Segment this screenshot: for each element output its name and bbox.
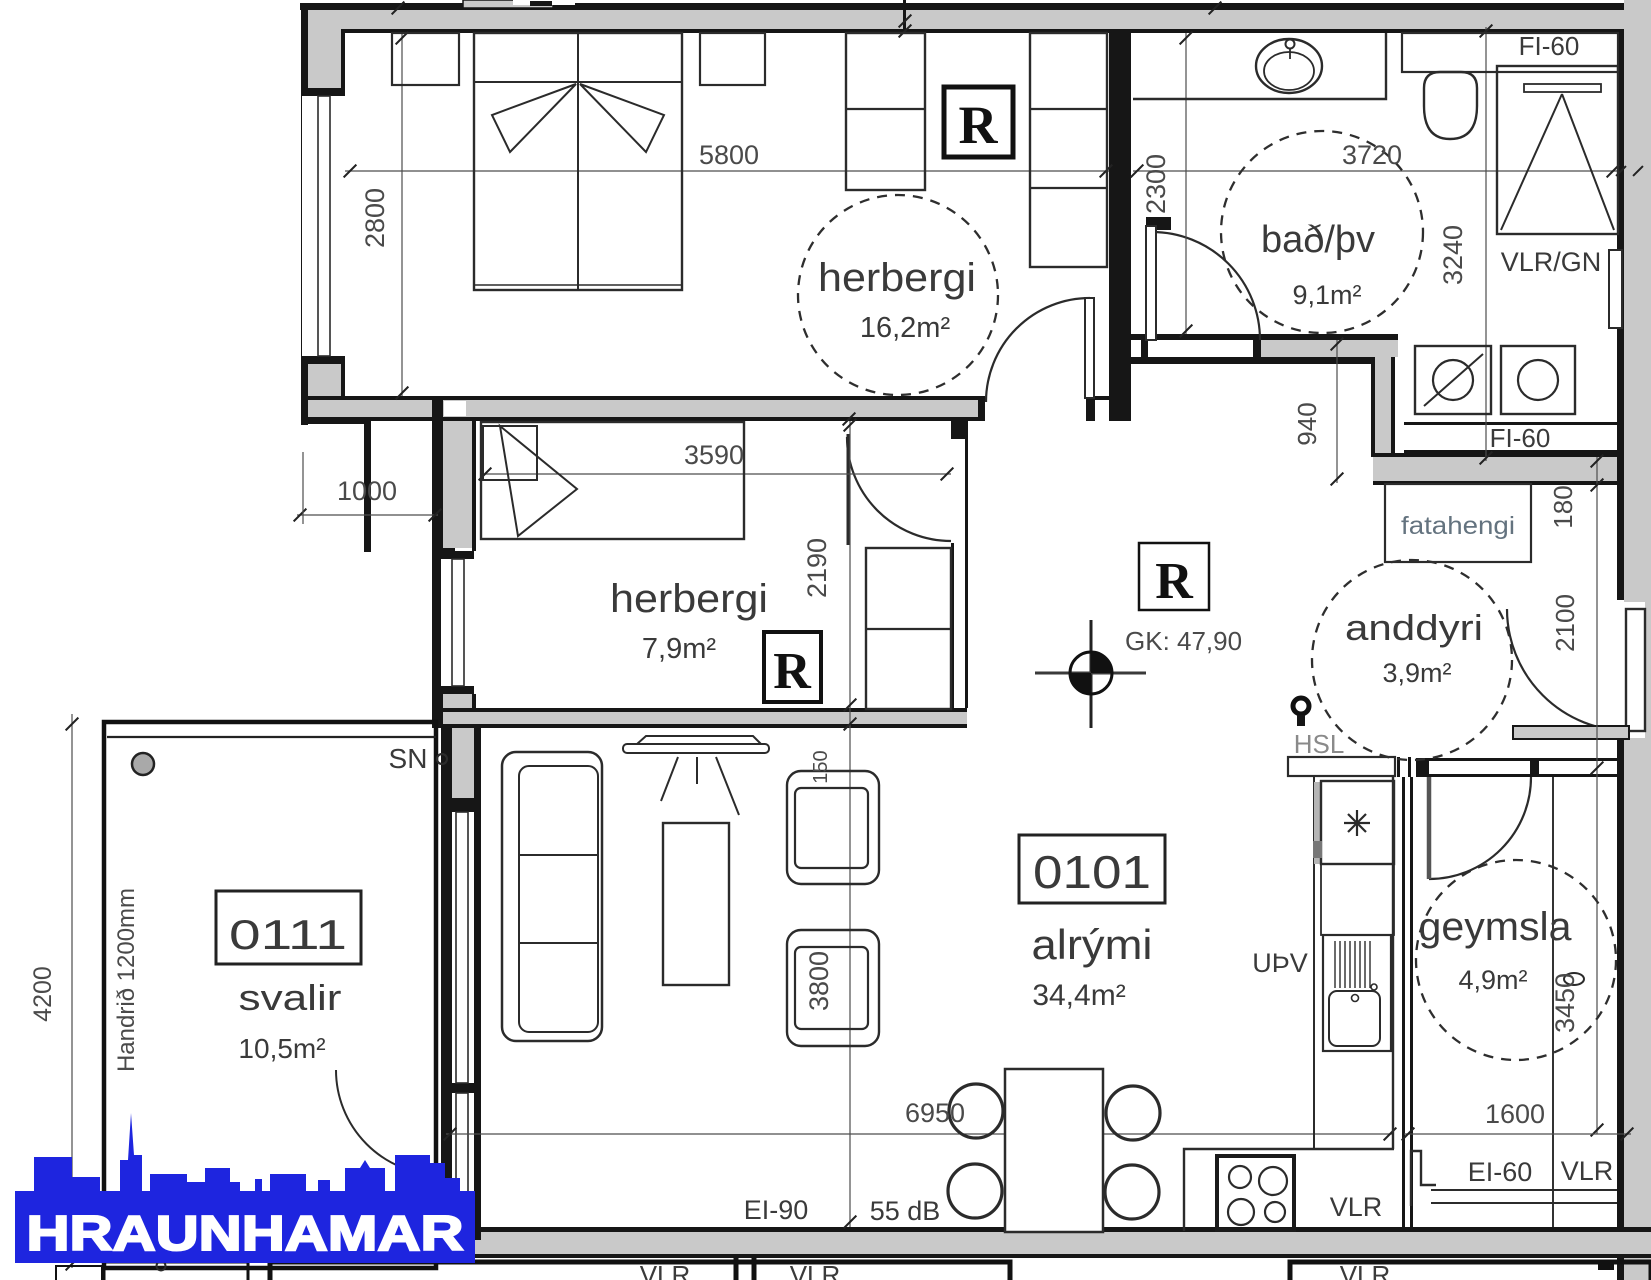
svg-text:3590: 3590 <box>684 440 744 470</box>
svg-text:3720: 3720 <box>1342 140 1402 170</box>
svg-text:3800: 3800 <box>804 951 834 1011</box>
svg-text:0101: 0101 <box>1033 846 1151 898</box>
svg-text:R: R <box>773 643 812 700</box>
svg-text:3450: 3450 <box>1550 973 1580 1033</box>
svg-text:HRAUNHAMAR: HRAUNHAMAR <box>27 1207 464 1261</box>
svg-text:150: 150 <box>810 750 832 783</box>
svg-text:2190: 2190 <box>802 538 832 598</box>
svg-text:herbergi: herbergi <box>818 256 976 300</box>
svg-text:10,5m²: 10,5m² <box>238 1033 325 1064</box>
svg-text:bað/þv: bað/þv <box>1261 219 1375 261</box>
svg-text:Handrið 1200mm: Handrið 1200mm <box>113 888 140 1072</box>
svg-text:VLR: VLR <box>1330 1192 1383 1222</box>
svg-text:180: 180 <box>1548 485 1578 528</box>
svg-text:R: R <box>1155 553 1194 610</box>
svg-text:2100: 2100 <box>1550 594 1580 652</box>
svg-text:GK: 47,90: GK: 47,90 <box>1125 626 1242 656</box>
svg-text:SN: SN <box>389 743 428 774</box>
svg-text:6950: 6950 <box>905 1098 965 1128</box>
svg-text:VLR: VLR <box>1340 1260 1391 1280</box>
svg-text:940: 940 <box>1292 402 1322 445</box>
svg-text:34,4m²: 34,4m² <box>1032 979 1125 1012</box>
svg-text:4200: 4200 <box>29 966 57 1022</box>
svg-text:EI-60: EI-60 <box>1468 1157 1533 1187</box>
svg-text:55 dB: 55 dB <box>870 1196 941 1226</box>
svg-text:3,9m²: 3,9m² <box>1382 658 1451 688</box>
svg-text:1000: 1000 <box>337 476 397 506</box>
svg-text:2800: 2800 <box>360 188 390 248</box>
svg-text:VLR: VLR <box>1561 1156 1614 1186</box>
svg-text:9,1m²: 9,1m² <box>1292 280 1361 310</box>
svg-text:FI-60: FI-60 <box>1519 31 1580 61</box>
svg-text:5800: 5800 <box>699 140 759 170</box>
svg-text:VLR: VLR <box>640 1260 691 1280</box>
svg-text:herbergi: herbergi <box>610 577 768 621</box>
svg-text:16,2m²: 16,2m² <box>860 312 951 344</box>
svg-text:EI-90: EI-90 <box>744 1195 809 1225</box>
svg-text:svalir: svalir <box>239 977 342 1018</box>
svg-text:UÞV: UÞV <box>1252 948 1308 978</box>
svg-text:4,9m²: 4,9m² <box>1458 965 1527 995</box>
svg-text:fatahengi: fatahengi <box>1401 512 1515 540</box>
svg-text:anddyri: anddyri <box>1345 607 1483 648</box>
svg-text:R: R <box>959 95 999 155</box>
svg-text:HSL: HSL <box>1294 729 1345 759</box>
svg-text:geymsla: geymsla <box>1419 905 1573 949</box>
svg-text:3240: 3240 <box>1438 225 1468 285</box>
svg-text:VLR/GN: VLR/GN <box>1501 247 1602 277</box>
svg-text:2300: 2300 <box>1141 154 1171 214</box>
svg-text:alrými: alrými <box>1032 921 1153 968</box>
svg-text:0111: 0111 <box>229 911 347 958</box>
svg-text:7,9m²: 7,9m² <box>642 633 716 665</box>
svg-text:FI-60: FI-60 <box>1490 423 1551 453</box>
svg-text:1600: 1600 <box>1485 1099 1545 1129</box>
svg-text:VLR: VLR <box>790 1260 841 1280</box>
